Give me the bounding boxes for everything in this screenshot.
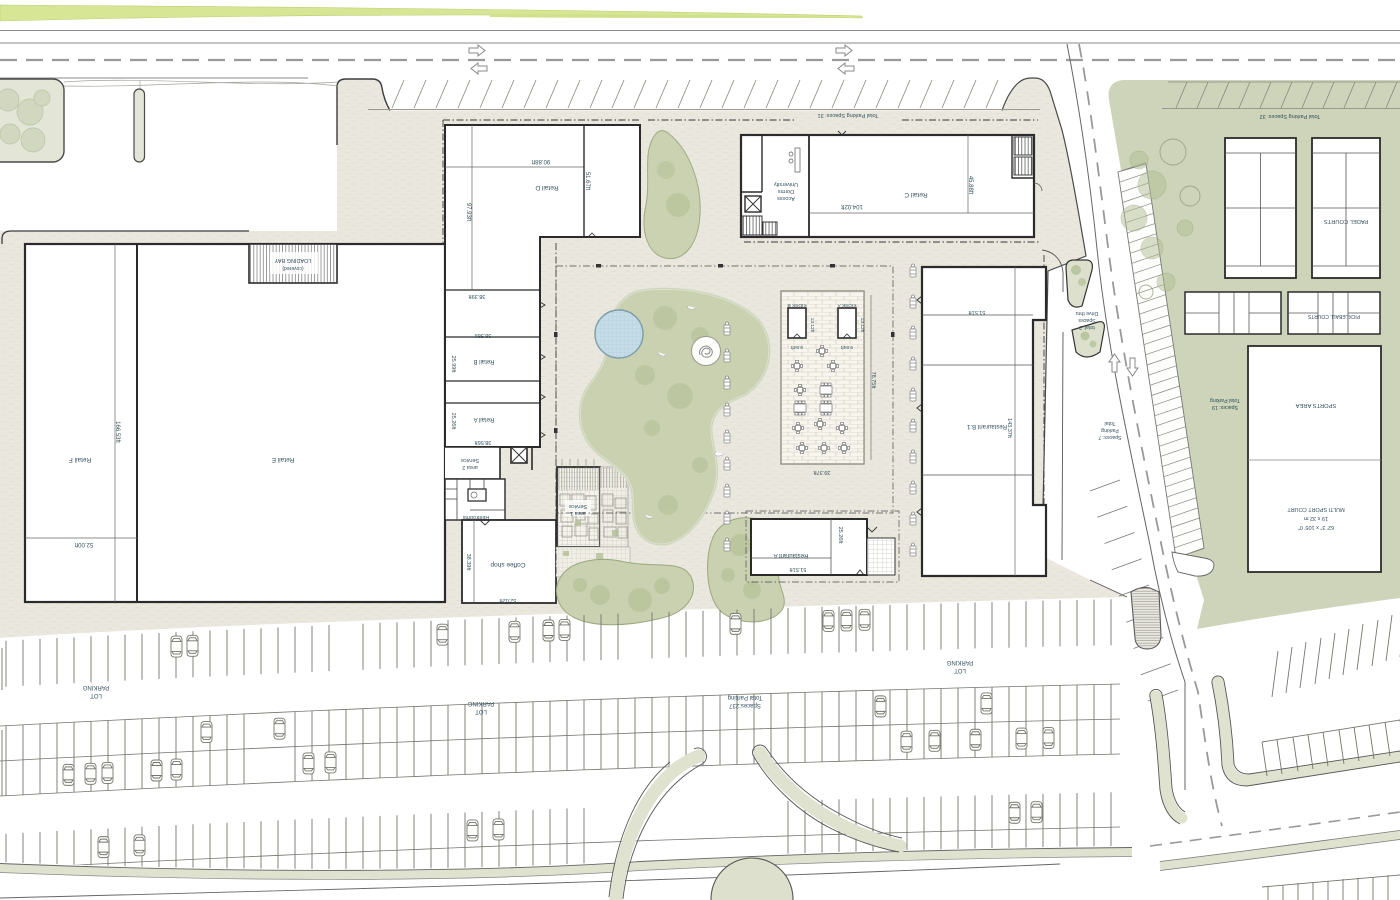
svg-text:Service: Service (461, 457, 479, 463)
svg-text:Spaces: Spaces (1078, 317, 1096, 323)
svg-text:Total Parking: Total Parking (728, 694, 763, 700)
svg-text:143.37ft: 143.37ft (1006, 418, 1012, 438)
svg-text:52.00ft: 52.00ft (74, 541, 93, 547)
svg-text:PICKLEBALL COURTS: PICKLEBALL COURTS (1307, 313, 1360, 319)
svg-text:39.37ft: 39.37ft (813, 469, 830, 475)
svg-text:51.51ft: 51.51ft (789, 566, 806, 572)
svg-text:97.93ft: 97.93ft (465, 203, 471, 222)
svg-text:Spaces: 19: Spaces: 19 (1212, 404, 1238, 410)
svg-text:52.02ft: 52.02ft (499, 597, 516, 603)
svg-text:area 2: area 2 (462, 464, 478, 470)
svg-text:45.88ft: 45.88ft (967, 176, 973, 195)
svg-text:38.56ft: 38.56ft (474, 439, 491, 445)
svg-text:Service: Service (569, 503, 587, 509)
svg-text:9.84ft: 9.84ft (840, 344, 853, 350)
svg-text:KIOSK B: KIOSK B (787, 302, 806, 308)
svg-text:78.75ft: 78.75ft (870, 372, 876, 389)
svg-text:Access: Access (777, 195, 795, 201)
svg-text:Retail F: Retail F (69, 456, 91, 463)
svg-text:166.53ft: 166.53ft (114, 421, 120, 443)
svg-text:Dorms: Dorms (778, 188, 794, 194)
svg-text:MULTI SPORT COURT: MULTI SPORT COURT (1287, 506, 1345, 512)
svg-text:Restrooms: Restrooms (462, 514, 489, 520)
svg-text:Retail C: Retail C (904, 191, 927, 198)
svg-text:62' 3" x 105' 0": 62' 3" x 105' 0" (1298, 524, 1334, 530)
svg-text:PARKING: PARKING (82, 684, 109, 690)
svg-text:13.12ft: 13.12ft (809, 318, 815, 333)
svg-text:Drive thru: Drive thru (1076, 310, 1099, 316)
svg-text:38.56ft: 38.56ft (474, 332, 491, 338)
svg-text:104.02ft: 104.02ft (841, 203, 863, 209)
svg-text:Spaces:237: Spaces:237 (728, 702, 760, 708)
svg-text:(covered): (covered) (282, 265, 303, 271)
svg-text:Total: Total (1105, 420, 1116, 426)
svg-text:Restaurant A: Restaurant A (774, 552, 809, 558)
svg-text:Coffee shop: Coffee shop (490, 561, 525, 568)
svg-text:University: University (774, 181, 798, 187)
svg-text:51.67ft: 51.67ft (584, 172, 590, 191)
svg-text:Total Parking Spaces: 32: Total Parking Spaces: 32 (1260, 113, 1321, 119)
svg-text:SPORTS AREA: SPORTS AREA (1295, 402, 1336, 408)
svg-text:25.26ft: 25.26ft (450, 413, 456, 430)
svg-text:PADEL COURTS: PADEL COURTS (1324, 218, 1368, 224)
svg-text:PARKING: PARKING (946, 659, 973, 665)
svg-text:25.26ft: 25.26ft (837, 527, 843, 544)
svg-text:Retail B: Retail B (473, 358, 494, 364)
svg-text:Spaces: 7: Spaces: 7 (1098, 434, 1121, 440)
svg-text:Retail E: Retail E (271, 456, 294, 463)
svg-text:38.39ft: 38.39ft (465, 554, 471, 571)
svg-text:38.39ft: 38.39ft (468, 293, 485, 299)
svg-text:Restaurant B.1: Restaurant B.1 (966, 423, 1007, 429)
svg-text:Total Parking: Total Parking (1210, 397, 1240, 403)
svg-text:LOT: LOT (954, 667, 966, 673)
svg-text:Parking: Parking (1101, 427, 1119, 433)
svg-text:LOT: LOT (90, 692, 102, 698)
svg-text:LOADING BAY: LOADING BAY (274, 257, 311, 263)
svg-text:Retail D: Retail D (535, 184, 558, 191)
svg-text:19 x 32 m: 19 x 32 m (1304, 515, 1329, 521)
svg-text:13.12ft: 13.12ft (859, 318, 865, 333)
svg-text:Total Parking Spaces: 31: Total Parking Spaces: 31 (818, 112, 879, 118)
svg-text:KIOSK A: KIOSK A (837, 302, 857, 308)
svg-text:25.99ft: 25.99ft (450, 356, 456, 373)
svg-text:Retail A: Retail A (474, 416, 495, 422)
svg-text:total: 2: total: 2 (1079, 324, 1095, 330)
svg-text:51.51ft: 51.51ft (968, 309, 985, 315)
svg-text:9.84ft: 9.84ft (790, 344, 803, 350)
svg-text:90.88ft: 90.88ft (531, 158, 550, 164)
svg-text:LOT: LOT (475, 708, 487, 714)
svg-text:PARKING: PARKING (467, 700, 494, 706)
